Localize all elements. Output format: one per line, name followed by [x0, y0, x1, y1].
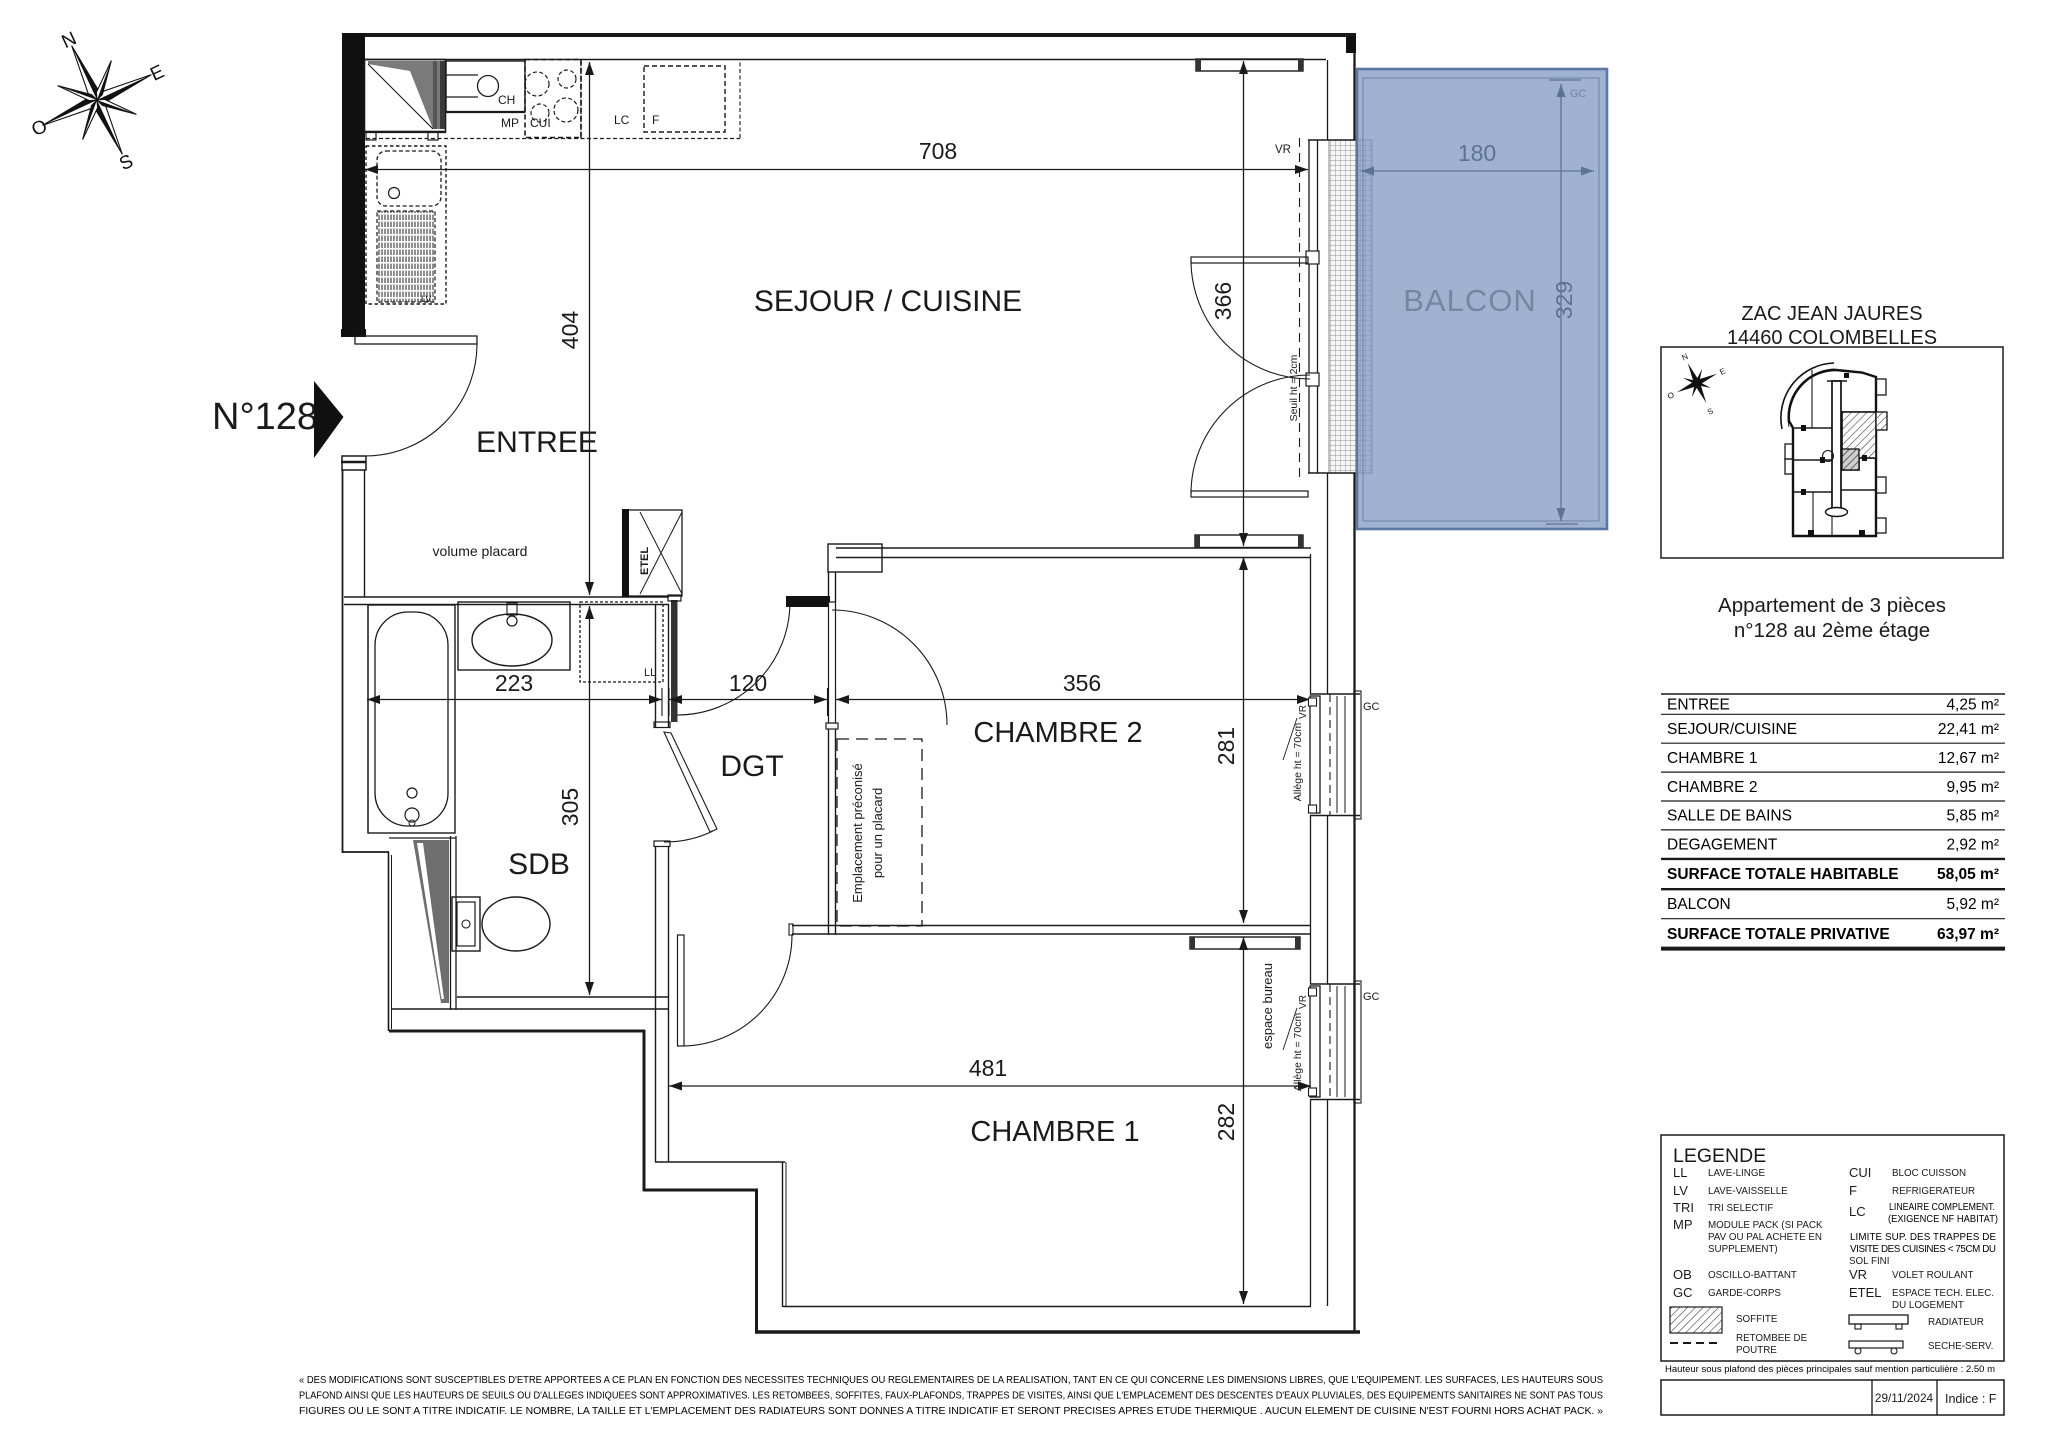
svg-text:ENTREE: ENTREE: [1667, 696, 1730, 713]
svg-text:Emplacement préconisé: Emplacement préconisé: [850, 763, 865, 902]
svg-text:VISITE DES CUISINES < 75CM DU: VISITE DES CUISINES < 75CM DU: [1850, 1244, 1996, 1255]
svg-text:Appartement de 3 pièces: Appartement de 3 pièces: [1718, 594, 1946, 617]
svg-text:LAVE-LINGE: LAVE-LINGE: [1708, 1168, 1765, 1179]
svg-text:GC: GC: [1363, 991, 1380, 1003]
svg-text:espace bureau: espace bureau: [1260, 963, 1275, 1049]
svg-text:356: 356: [1063, 670, 1101, 696]
svg-text:14460 COLOMBELLES: 14460 COLOMBELLES: [1727, 327, 1937, 349]
svg-text:481: 481: [969, 1055, 1007, 1081]
svg-text:VR: VR: [1275, 144, 1291, 156]
svg-text:GC: GC: [1363, 701, 1380, 713]
svg-text:DEGAGEMENT: DEGAGEMENT: [1667, 837, 1778, 854]
svg-text:404: 404: [557, 311, 583, 350]
svg-text:ENTREE: ENTREE: [476, 426, 598, 459]
svg-text:F: F: [652, 113, 659, 127]
svg-text:LEGENDE: LEGENDE: [1673, 1145, 1766, 1167]
svg-text:RADIATEUR: RADIATEUR: [1928, 1317, 1984, 1328]
svg-text:FIGURES OU LE SONT A TITRE IND: FIGURES OU LE SONT A TITRE INDICATIF. LE…: [299, 1406, 1603, 1417]
svg-text:LAVE-VAISSELLE: LAVE-VAISSELLE: [1708, 1186, 1788, 1197]
svg-text:CUI: CUI: [1849, 1165, 1871, 1180]
svg-text:VR: VR: [1298, 705, 1309, 719]
svg-text:Allège ht = 70cm: Allège ht = 70cm: [1292, 1013, 1304, 1092]
svg-text:366: 366: [1210, 282, 1236, 320]
svg-text:SURFACE TOTALE HABITABLE: SURFACE TOTALE HABITABLE: [1667, 866, 1899, 883]
svg-text:ESPACE TECH. ELEC.: ESPACE TECH. ELEC.: [1892, 1288, 1994, 1299]
svg-text:223: 223: [495, 670, 533, 696]
svg-text:LC: LC: [1849, 1204, 1866, 1219]
svg-text:9,95 m²: 9,95 m²: [1946, 779, 1999, 796]
svg-text:CHAMBRE 1: CHAMBRE 1: [970, 1116, 1139, 1148]
svg-text:120: 120: [729, 670, 767, 696]
svg-text:MP: MP: [501, 116, 519, 130]
svg-text:29/11/2024: 29/11/2024: [1875, 1391, 1934, 1405]
svg-text:LC: LC: [614, 113, 630, 127]
svg-text:329: 329: [1551, 281, 1577, 319]
svg-text:5,92 m²: 5,92 m²: [1946, 896, 1999, 913]
svg-text:SALLE DE BAINS: SALLE DE BAINS: [1667, 808, 1792, 825]
svg-text:LL: LL: [644, 667, 656, 679]
svg-text:volume placard: volume placard: [433, 543, 528, 559]
svg-text:SOFFITE: SOFFITE: [1736, 1314, 1778, 1325]
svg-text:BALCON: BALCON: [1667, 896, 1731, 913]
svg-text:MP: MP: [1673, 1217, 1693, 1232]
svg-text:OSCILLO-BATTANT: OSCILLO-BATTANT: [1708, 1270, 1797, 1281]
svg-text:22,41 m²: 22,41 m²: [1938, 721, 1999, 738]
svg-text:58,05 m²: 58,05 m²: [1937, 866, 1999, 883]
svg-text:305: 305: [557, 788, 583, 826]
svg-text:CHAMBRE 2: CHAMBRE 2: [1667, 779, 1757, 796]
svg-text:SOL FINI: SOL FINI: [1849, 1256, 1889, 1267]
svg-text:ZAC JEAN JAURES: ZAC JEAN JAURES: [1741, 303, 1922, 325]
svg-text:ETEL: ETEL: [1849, 1285, 1882, 1300]
svg-text:N°128: N°128: [212, 396, 318, 438]
svg-text:SEJOUR/CUISINE: SEJOUR/CUISINE: [1667, 721, 1797, 738]
svg-text:CHAMBRE 2: CHAMBRE 2: [973, 717, 1142, 749]
svg-text:LL: LL: [1673, 1165, 1687, 1180]
svg-text:ETEL: ETEL: [639, 547, 651, 575]
svg-text:DGT: DGT: [720, 750, 783, 783]
svg-text:Hauteur sous plafond des pièce: Hauteur sous plafond des pièces principa…: [1665, 1364, 1995, 1375]
svg-text:PAV OU PAL ACHETE EN: PAV OU PAL ACHETE EN: [1708, 1232, 1822, 1243]
svg-text:GARDE-CORPS: GARDE-CORPS: [1708, 1288, 1781, 1299]
svg-text:PLAFOND AINSI QUE LES HAUTEURS: PLAFOND AINSI QUE LES HAUTEURS DE SEUILS…: [299, 1391, 1603, 1402]
svg-text:TRI: TRI: [1673, 1200, 1694, 1215]
svg-text:GC: GC: [1570, 88, 1587, 100]
svg-text:281: 281: [1213, 727, 1239, 765]
svg-text:LV: LV: [421, 294, 431, 304]
svg-text:pour un placard: pour un placard: [870, 788, 885, 878]
svg-text:REFRIGERATEUR: REFRIGERATEUR: [1892, 1186, 1975, 1197]
svg-text:RETOMBEE DE: RETOMBEE DE: [1736, 1333, 1808, 1344]
svg-text:POUTRE: POUTRE: [1736, 1345, 1777, 1356]
svg-text:4,25 m²: 4,25 m²: [1946, 696, 1999, 713]
svg-text:F: F: [1849, 1183, 1857, 1198]
svg-text:DU LOGEMENT: DU LOGEMENT: [1892, 1300, 1964, 1311]
svg-text:BLOC CUISSON: BLOC CUISSON: [1892, 1168, 1966, 1179]
svg-text:LINEAIRE COMPLEMENT.: LINEAIRE COMPLEMENT.: [1889, 1202, 1995, 1213]
svg-text:LIMITE SUP. DES TRAPPES DE: LIMITE SUP. DES TRAPPES DE: [1850, 1232, 1996, 1243]
svg-text:GC: GC: [1673, 1285, 1693, 1300]
svg-text:VOLET ROULANT: VOLET ROULANT: [1892, 1270, 1973, 1281]
svg-text:Indice : F: Indice : F: [1945, 1392, 1997, 1406]
svg-text:VR: VR: [1298, 995, 1309, 1009]
svg-text:SURFACE TOTALE PRIVATIVE: SURFACE TOTALE PRIVATIVE: [1667, 926, 1890, 943]
svg-text:CHAMBRE 1: CHAMBRE 1: [1667, 750, 1757, 767]
svg-text:SUPPLEMENT): SUPPLEMENT): [1708, 1244, 1778, 1255]
svg-text:(EXIGENCE NF HABITAT): (EXIGENCE NF HABITAT): [1888, 1214, 1998, 1225]
svg-text:CH: CH: [498, 93, 515, 107]
svg-text:LV: LV: [1673, 1183, 1688, 1198]
svg-text:SEJOUR / CUISINE: SEJOUR / CUISINE: [754, 285, 1022, 318]
svg-text:5,85 m²: 5,85 m²: [1946, 808, 1999, 825]
svg-text:282: 282: [1213, 1103, 1239, 1141]
svg-text:63,97 m²: 63,97 m²: [1937, 926, 1999, 943]
svg-text:OB: OB: [1673, 1267, 1692, 1282]
svg-text:« DES MODIFICATIONS SONT SUSCE: « DES MODIFICATIONS SONT SUSCEPTIBLES D'…: [299, 1375, 1603, 1386]
svg-text:2,92 m²: 2,92 m²: [1946, 837, 1999, 854]
svg-text:180: 180: [1458, 140, 1496, 166]
svg-text:VR: VR: [1849, 1267, 1867, 1282]
svg-text:708: 708: [919, 138, 957, 164]
svg-text:MODULE PACK (SI PACK: MODULE PACK (SI PACK: [1708, 1220, 1823, 1231]
svg-text:SDB: SDB: [508, 848, 570, 881]
svg-text:Seuil ht = 2cm: Seuil ht = 2cm: [1288, 354, 1300, 421]
svg-text:BALCON: BALCON: [1403, 283, 1536, 318]
svg-text:n°128 au 2ème étage: n°128 au 2ème étage: [1734, 619, 1930, 642]
svg-text:Allège ht = 70cm: Allège ht = 70cm: [1292, 723, 1304, 802]
svg-text:SECHE-SERV.: SECHE-SERV.: [1928, 1341, 1993, 1352]
svg-text:12,67 m²: 12,67 m²: [1938, 750, 1999, 767]
svg-text:TRI SELECTIF: TRI SELECTIF: [1708, 1203, 1773, 1214]
